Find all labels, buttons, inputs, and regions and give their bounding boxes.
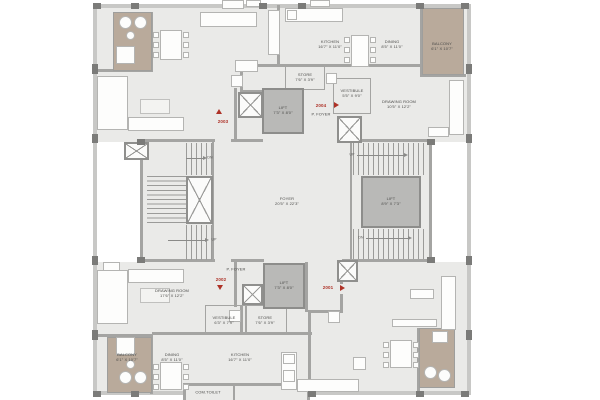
room-dims: 20'5" X 22'3": [275, 201, 299, 206]
column: [92, 64, 98, 74]
entry-arrow-icon: [340, 285, 345, 291]
chair: [344, 47, 350, 53]
cabinet: [353, 357, 366, 370]
column: [427, 139, 435, 145]
chair: [383, 362, 389, 368]
outer-wall: [93, 4, 471, 8]
balcony-table: [126, 31, 135, 40]
chair: [183, 42, 189, 48]
room-name: P. FOYER: [227, 266, 246, 271]
room-label-lift-top: LIFT 7'3" X 8'0": [273, 105, 292, 115]
sofa: [449, 80, 464, 135]
room-label-lift-bottom: LIFT 7'3" X 8'0": [274, 280, 293, 290]
room-dims: 6'1" X 10'7": [431, 46, 453, 51]
column: [92, 134, 98, 143]
column: [466, 256, 472, 265]
room-label-lift-right: LIFT 8'9" X 7'3": [381, 196, 400, 206]
stair-shaft-left: [186, 176, 213, 224]
shaft: [337, 116, 362, 143]
room-label-vestibule-bl: VESTIBULE 6'3" X 7'9": [213, 315, 236, 325]
room-dims: 8'5" X 11'0": [381, 44, 402, 49]
service-ledge: [310, 0, 330, 7]
room-label-dining-bl: DINING 8'5" X 11'0": [161, 352, 182, 362]
stair-label-dn: DN: [207, 156, 212, 161]
entry-arrow-icon: [334, 102, 339, 108]
wall: [234, 88, 237, 142]
balcony-chair: [134, 16, 147, 29]
chair: [370, 47, 376, 53]
chair: [153, 52, 159, 58]
stairs-right-flight: [353, 143, 428, 175]
room-label-store-bl: STORE 7'6" X 3'9": [255, 315, 274, 325]
dining-table: [160, 362, 182, 390]
shaft: [337, 260, 358, 282]
sofa: [428, 127, 449, 137]
chair: [370, 37, 376, 43]
balcony-chair: [424, 366, 437, 379]
column: [92, 256, 98, 265]
room-label-foyer: FOYER 20'5" X 22'3": [275, 196, 299, 206]
sofa: [128, 269, 184, 283]
room-label-balcony-tr: BALCONY 6'1" X 10'7": [431, 41, 453, 51]
column: [416, 3, 424, 9]
room-label-com-toilet: COM.TOILET: [195, 389, 220, 394]
entry-arrow-icon: [217, 285, 223, 290]
room-dims: 6'3" X 7'9": [213, 320, 236, 325]
room-dims: 8'9" X 7'3": [381, 201, 400, 206]
cabinet: [410, 289, 434, 299]
service-ledge: [222, 0, 244, 9]
wall: [240, 64, 422, 67]
wall: [305, 262, 308, 312]
wash-basin: [231, 75, 243, 87]
chair: [370, 57, 376, 63]
balcony-planter: [116, 46, 135, 64]
column: [461, 3, 469, 9]
chair: [183, 52, 189, 58]
sofa: [128, 117, 184, 131]
chair: [183, 364, 189, 370]
stair-arrow-line: [357, 155, 404, 156]
stair-arrow-line: [186, 158, 203, 159]
stair-label-up: UP: [349, 153, 354, 158]
column: [131, 3, 139, 9]
stair-label-dn: DN: [358, 236, 363, 241]
coffee-table: [140, 99, 170, 114]
column: [466, 64, 472, 74]
room-label-store-tr: STORE 7'6" X 3'9": [295, 72, 314, 82]
room-label-kitchen-bl: KITCHEN 16'7" X 11'0": [228, 352, 252, 362]
room-label-pfoyer-top: P. FOYER: [312, 111, 331, 116]
dining-table: [351, 35, 369, 67]
room-name: COM.TOILET: [195, 389, 220, 394]
kitchen-sink: [287, 10, 297, 20]
chair: [413, 342, 419, 348]
entry-arrow-icon: [216, 109, 222, 114]
column: [466, 330, 472, 340]
kitchen-counter: [268, 10, 280, 55]
column: [298, 3, 306, 9]
room-dims: 7'3" X 8'0": [274, 285, 293, 290]
unit-marker-2002: 2002: [216, 277, 226, 283]
stairs-left-flight: [186, 225, 212, 260]
room-dims: 16'7" X 11'0": [318, 44, 342, 49]
stair-arrow-line: [168, 240, 205, 241]
arrow-icon: [205, 238, 209, 242]
chair: [344, 37, 350, 43]
void-right: [432, 142, 467, 262]
column: [131, 391, 139, 397]
balcony-planter: [432, 331, 448, 343]
kitchen-island: [235, 60, 258, 72]
room-dims: 7'3" X 8'0": [273, 110, 292, 115]
column: [461, 391, 469, 397]
room-label-pfoyer-bottom: P. FOYER: [227, 266, 246, 271]
chair: [413, 362, 419, 368]
dining-table: [390, 340, 412, 368]
column: [308, 391, 316, 397]
unit-marker-2003: 2003: [218, 119, 228, 125]
void-left: [97, 142, 140, 262]
stairs-right-flight: [353, 229, 428, 259]
room-dims: 8'5" X 11'0": [161, 357, 182, 362]
wall: [350, 142, 352, 260]
chair: [383, 342, 389, 348]
chair: [153, 364, 159, 370]
room-label-drawing-bl: DRAWING ROOM 17'6" X 12'2": [155, 288, 189, 298]
chair: [183, 374, 189, 380]
column: [416, 391, 424, 397]
room-label-drawing-tr: DRAWING ROOM 10'5" X 12'2": [382, 99, 416, 109]
balcony-chair: [119, 371, 132, 384]
sofa: [97, 270, 128, 324]
kitchen-stove: [283, 370, 295, 382]
room-label-vestibule-tr: VESTIBULE 5'5" X 9'0": [341, 88, 364, 98]
floor-plan: KITCHEN 16'7" X 11'0" DINING 8'5" X 11'0…: [0, 0, 600, 400]
room-label-kitchen-tr: KITCHEN 16'7" X 11'0": [318, 39, 342, 49]
dining-table: [160, 30, 182, 60]
column: [466, 134, 472, 143]
wall: [233, 385, 235, 400]
kitchen-counter: [200, 12, 257, 27]
room-label-balcony-bl: BALCONY 6'1" X 10'7": [116, 352, 138, 362]
chair: [153, 42, 159, 48]
unit-marker-2004: 2004: [316, 103, 326, 109]
column: [137, 139, 145, 145]
chair: [183, 384, 189, 390]
tv-console: [392, 319, 437, 327]
stair-label-up: UP: [211, 238, 216, 243]
column: [92, 330, 98, 340]
stairs-left-steps: [147, 176, 186, 224]
room-label-dining-tr: DINING 8'5" X 11'0": [381, 39, 402, 49]
balcony-chair: [119, 16, 132, 29]
wall: [429, 139, 432, 262]
chair: [183, 32, 189, 38]
room-dims: 7'6" X 3'9": [295, 77, 314, 82]
column: [137, 257, 145, 263]
arrow-icon: [404, 153, 408, 157]
arrow-icon: [408, 236, 412, 240]
chair: [344, 57, 350, 63]
room-dims: 7'6" X 3'9": [255, 320, 274, 325]
unit-marker-2001: 2001: [323, 285, 333, 291]
column: [93, 391, 101, 397]
room-dims: 17'6" X 12'2": [155, 293, 189, 298]
room-name: P. FOYER: [312, 111, 331, 116]
chair: [153, 384, 159, 390]
shaft: [242, 284, 263, 305]
balcony-chair: [438, 369, 451, 382]
shaft: [238, 92, 263, 118]
room-dims: 5'5" X 9'0": [341, 93, 364, 98]
room-dims: 6'1" X 10'7": [116, 357, 138, 362]
sofa: [97, 76, 128, 130]
column: [259, 3, 267, 9]
kitchen-sink: [283, 354, 295, 364]
chair: [383, 352, 389, 358]
chair: [413, 352, 419, 358]
chair: [153, 374, 159, 380]
wash-basin: [328, 311, 340, 323]
sofa: [441, 276, 456, 330]
wall: [140, 139, 215, 142]
stair-arrow-line: [366, 238, 408, 239]
room-dims: 10'5" X 12'2": [382, 104, 416, 109]
room-dims: 16'7" X 11'0": [228, 357, 252, 362]
column: [93, 3, 101, 9]
wash-basin: [326, 73, 337, 84]
kitchen-counter: [297, 379, 359, 392]
balcony-chair: [134, 371, 147, 384]
column: [427, 257, 435, 263]
chair: [153, 32, 159, 38]
